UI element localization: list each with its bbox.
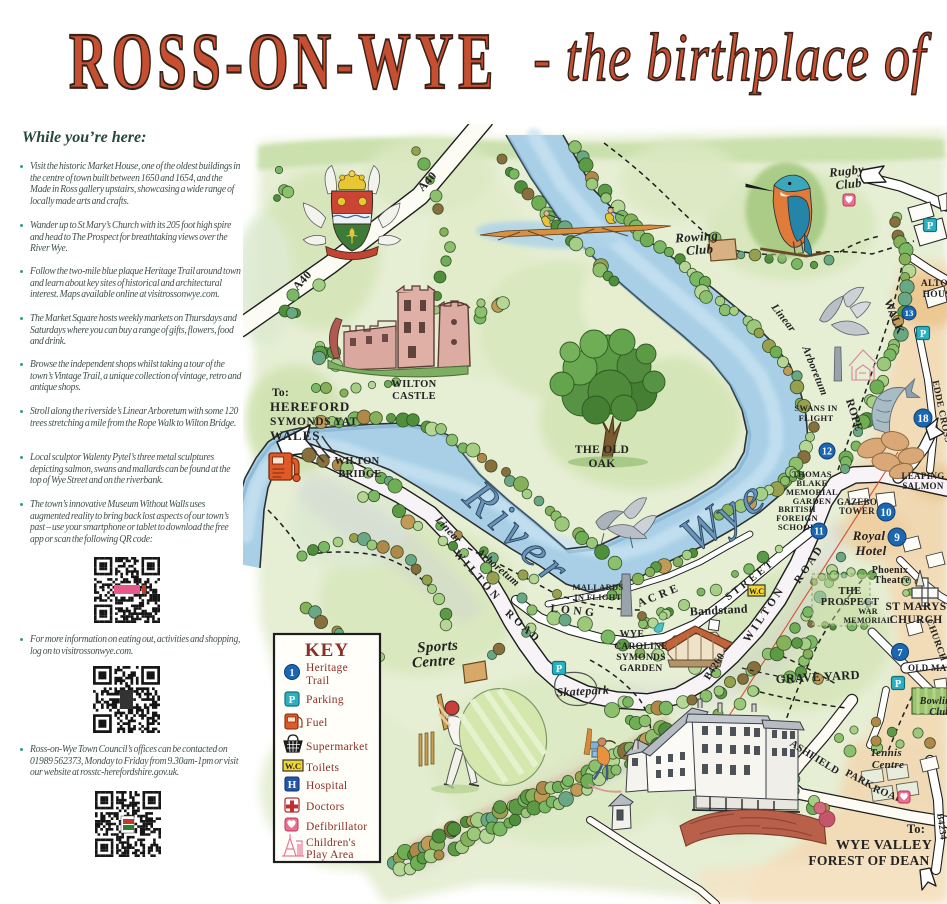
svg-text:HEREFORD: HEREFORD <box>270 399 350 414</box>
svg-text:SYMONDS: SYMONDS <box>616 653 666 663</box>
svg-text:OLD MAI: OLD MAI <box>908 663 947 673</box>
svg-text:KEY: KEY <box>305 640 349 661</box>
svg-text:H: H <box>288 779 297 791</box>
svg-text:Play Area: Play Area <box>306 849 354 861</box>
svg-text:Hospital: Hospital <box>306 780 347 792</box>
svg-text:13: 13 <box>905 308 914 318</box>
svg-text:Trail: Trail <box>306 675 329 687</box>
svg-text:Hotel: Hotel <box>854 543 886 558</box>
svg-text:HOUSE: HOUSE <box>923 290 947 300</box>
svg-text:ST MARYS: ST MARYS <box>886 601 947 613</box>
svg-text:BRIDGE: BRIDGE <box>338 469 381 480</box>
svg-text:Club: Club <box>686 241 714 258</box>
svg-text:P: P <box>289 694 296 706</box>
svg-text:Fuel: Fuel <box>306 717 328 729</box>
svg-text:18: 18 <box>917 413 929 425</box>
svg-text:Doctors: Doctors <box>306 801 345 813</box>
svg-text:Club: Club <box>929 707 947 718</box>
svg-text:LEAPING: LEAPING <box>901 471 944 481</box>
svg-text:CASTLE: CASTLE <box>392 391 436 402</box>
svg-text:Tennis: Tennis <box>870 747 902 759</box>
svg-text:P: P <box>556 664 563 675</box>
svg-text:1: 1 <box>290 668 295 679</box>
svg-text:Bowling: Bowling <box>919 696 947 707</box>
svg-text:SWANS IN: SWANS IN <box>794 403 838 413</box>
svg-text:P: P <box>927 221 934 232</box>
svg-text:MEMORIAL: MEMORIAL <box>843 616 892 625</box>
svg-text:TOWER: TOWER <box>839 506 875 516</box>
svg-text:Children's: Children's <box>306 837 356 849</box>
svg-text:OAK: OAK <box>588 458 615 470</box>
svg-text:Heritage: Heritage <box>306 662 348 674</box>
svg-text:9: 9 <box>894 532 900 544</box>
svg-text:SCHOOL: SCHOOL <box>778 522 816 532</box>
svg-text:To:: To: <box>272 387 289 399</box>
svg-text:ALTON: ALTON <box>921 279 947 289</box>
svg-text:FLIGHT: FLIGHT <box>799 413 834 423</box>
svg-text:12: 12 <box>822 447 832 458</box>
svg-text:Defibrillator: Defibrillator <box>306 821 367 833</box>
svg-text:Parking: Parking <box>306 694 344 706</box>
svg-text:Royal: Royal <box>852 528 886 543</box>
svg-text:WAR: WAR <box>858 607 878 616</box>
svg-text:WILTON: WILTON <box>392 379 437 390</box>
svg-text:WALES: WALES <box>270 428 321 443</box>
svg-text:MALLARDS: MALLARDS <box>572 582 623 592</box>
svg-text:To:: To: <box>907 822 926 836</box>
svg-text:Theatre: Theatre <box>874 575 910 586</box>
svg-text:Centre: Centre <box>872 759 904 771</box>
svg-text:IN FLIGHT: IN FLIGHT <box>574 592 621 602</box>
svg-text:P: P <box>920 329 927 340</box>
svg-text:WYE: WYE <box>620 629 645 640</box>
svg-text:Toilets: Toilets <box>306 762 339 774</box>
svg-text:CAROLINE: CAROLINE <box>614 642 668 652</box>
svg-text:THE OLD: THE OLD <box>575 444 629 456</box>
svg-text:SYMONDS YAT: SYMONDS YAT <box>270 416 358 428</box>
svg-text:WILTON: WILTON <box>335 456 380 467</box>
svg-text:Centre: Centre <box>411 653 456 672</box>
svg-text:Skatepark: Skatepark <box>556 683 609 700</box>
svg-text:WYE VALLEY: WYE VALLEY <box>836 838 932 853</box>
svg-text:10: 10 <box>880 507 892 519</box>
svg-text:Supermarket: Supermarket <box>306 741 369 753</box>
svg-text:Club: Club <box>835 176 863 193</box>
svg-text:GARDEN: GARDEN <box>620 664 663 674</box>
svg-text:FOREST OF DEAN: FOREST OF DEAN <box>808 853 929 868</box>
svg-text:W.C: W.C <box>285 761 301 771</box>
svg-text:SALMON: SALMON <box>902 481 944 491</box>
svg-text:W.C: W.C <box>749 587 764 596</box>
svg-text:11: 11 <box>814 527 823 538</box>
svg-text:P: P <box>895 679 902 690</box>
svg-text:7: 7 <box>897 648 903 659</box>
svg-text:THE: THE <box>838 586 861 597</box>
